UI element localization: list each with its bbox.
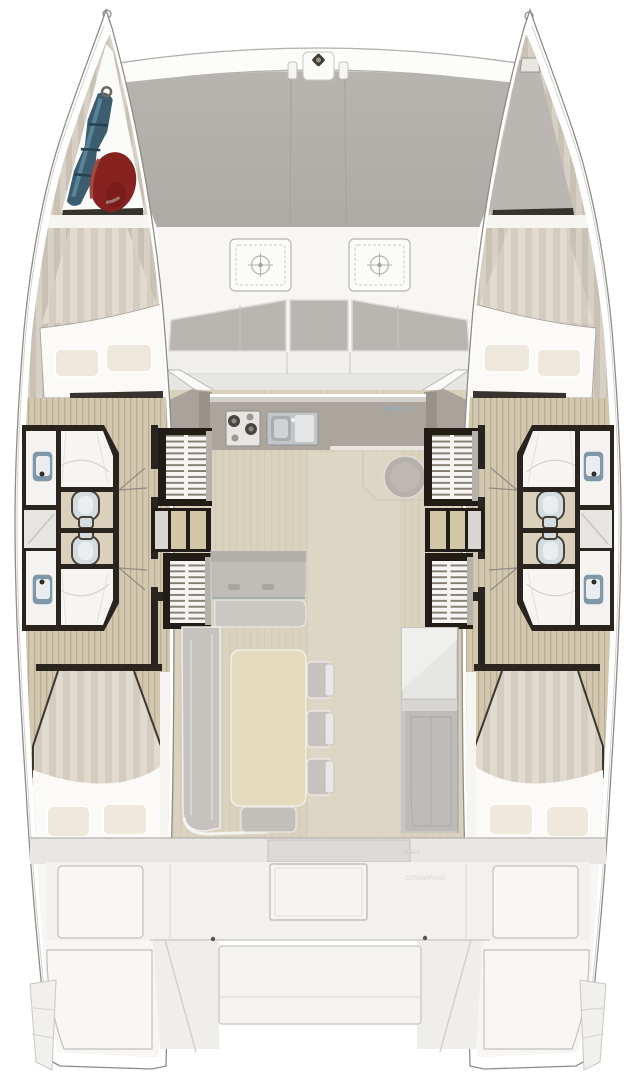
svg-text:CATAMARANS: CATAMARANS <box>405 876 446 882</box>
svg-text:BALI 4.5: BALI 4.5 <box>384 404 413 413</box>
svg-text:BALI: BALI <box>404 849 419 856</box>
